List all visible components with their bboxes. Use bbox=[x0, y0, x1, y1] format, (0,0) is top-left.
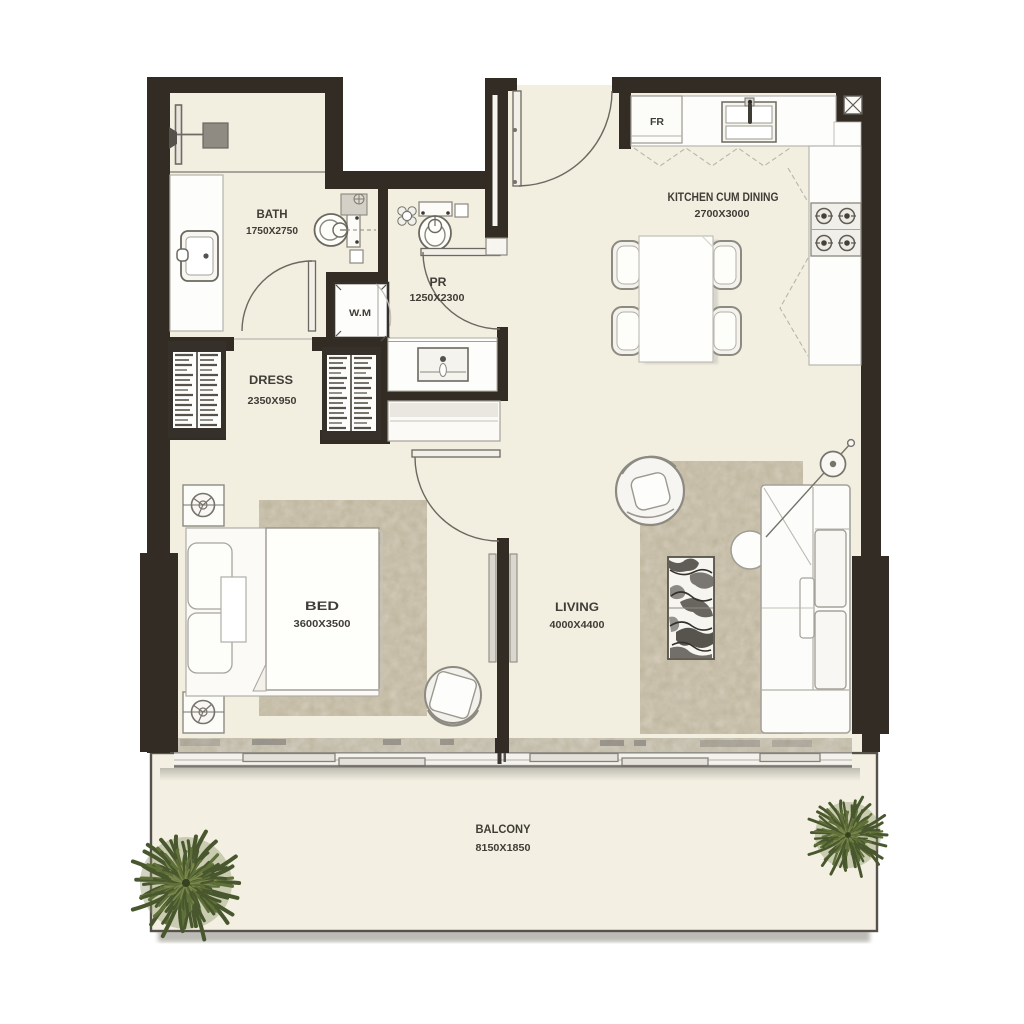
svg-text:KITCHEN CUM DINING: KITCHEN CUM DINING bbox=[668, 190, 779, 204]
svg-text:BED: BED bbox=[305, 599, 339, 613]
svg-text:3600X3500: 3600X3500 bbox=[294, 618, 351, 630]
svg-text:DRESS: DRESS bbox=[249, 373, 293, 387]
svg-text:4000X4400: 4000X4400 bbox=[550, 619, 605, 631]
svg-text:1250X2300: 1250X2300 bbox=[410, 292, 465, 304]
svg-text:2700X3000: 2700X3000 bbox=[695, 208, 750, 220]
svg-text:BATH: BATH bbox=[257, 207, 288, 221]
svg-text:BALCONY: BALCONY bbox=[476, 822, 531, 836]
svg-text:1750X2750: 1750X2750 bbox=[246, 225, 298, 237]
svg-text:FR: FR bbox=[650, 117, 665, 128]
svg-text:PR: PR bbox=[430, 275, 447, 289]
svg-text:8150X1850: 8150X1850 bbox=[476, 842, 531, 854]
svg-text:W.M: W.M bbox=[349, 308, 371, 319]
svg-text:LIVING: LIVING bbox=[555, 600, 599, 614]
svg-text:2350X950: 2350X950 bbox=[248, 395, 297, 407]
